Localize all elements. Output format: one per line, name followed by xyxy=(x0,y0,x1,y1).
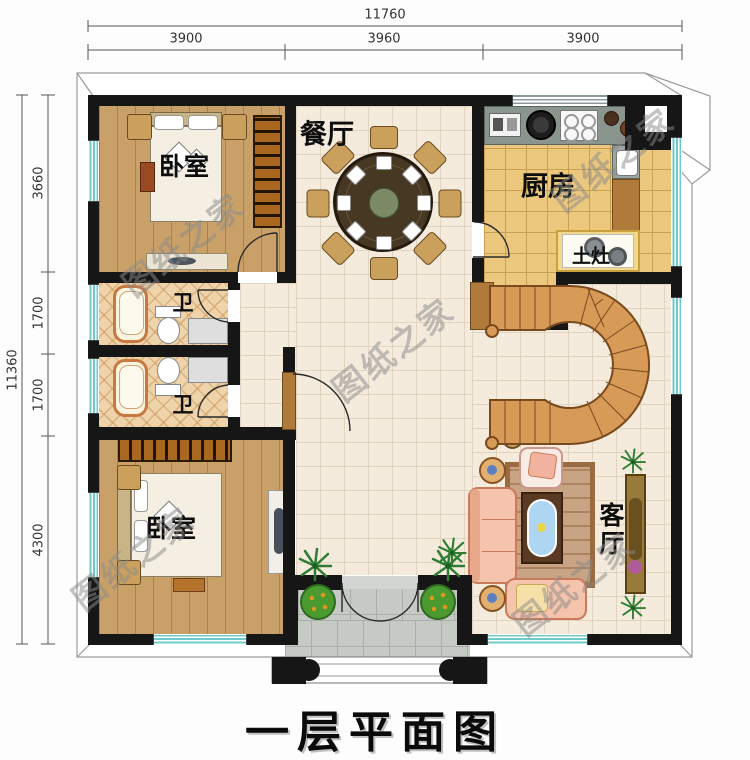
porch-apron xyxy=(285,620,470,657)
kitchen-wood-counter xyxy=(612,179,640,235)
place-setting xyxy=(376,156,392,170)
shower-bottom xyxy=(188,357,228,383)
sofa-main-back xyxy=(470,489,480,582)
wall-bath-separator xyxy=(88,345,240,357)
label-bath-bottom: 卫 xyxy=(173,389,194,419)
window-bath-bottom-left xyxy=(88,358,99,414)
armchair-pillow xyxy=(527,451,557,480)
wall-bath-right-a xyxy=(228,283,240,290)
entry-steps xyxy=(272,657,487,684)
window-stairs-right xyxy=(671,297,682,395)
dim-total-height: 11360 xyxy=(6,349,21,390)
place-setting xyxy=(337,195,351,211)
cooktop-burner xyxy=(581,127,596,142)
microwave-panel xyxy=(507,118,517,131)
floor-kitchen-lower xyxy=(484,272,556,318)
place-setting xyxy=(417,195,431,211)
wok-inner xyxy=(533,117,549,133)
door-bedroom-bottom xyxy=(282,372,296,430)
wall-kitchen-left-mid xyxy=(472,258,484,282)
toilet-top-bowl xyxy=(157,317,180,344)
window-bedroom-bottom-south xyxy=(153,634,247,645)
bed-top-pillow-left xyxy=(154,115,184,130)
dim-left-seg1: 3660 xyxy=(32,166,47,199)
coffee-table-item xyxy=(537,523,546,532)
ottoman-center xyxy=(487,593,497,603)
wall-bedroom-top-right xyxy=(285,95,296,283)
porch-floor xyxy=(298,588,457,621)
dim-left-seg4: 4300 xyxy=(32,523,47,556)
bed-top-pillow-right xyxy=(188,115,218,130)
window-bath-top-left xyxy=(88,284,99,341)
dining-chair xyxy=(307,190,330,218)
door-threshold xyxy=(342,576,418,589)
floor-plan: 11760 3900 3960 3900 11360 3660 1700 170… xyxy=(0,0,750,760)
window-bedroom-top-left xyxy=(88,140,99,202)
dim-left-seg2: 1700 xyxy=(32,296,47,329)
wall-entrance-stub-left xyxy=(283,575,298,645)
wall-entrance-stub-right xyxy=(457,575,472,645)
sofa-main-cushion-line xyxy=(482,551,515,552)
label-earth-stove: 土灶 xyxy=(572,242,610,269)
nightstand-top-right xyxy=(222,114,247,140)
wall-kitchen-south-east xyxy=(556,272,682,284)
door-stairhall xyxy=(470,282,494,330)
dim-top-seg1: 3900 xyxy=(169,32,202,47)
toilet-bottom-bowl xyxy=(157,357,180,384)
ottoman-center xyxy=(487,465,497,475)
dim-top-seg2: 3960 xyxy=(367,32,400,47)
bedside-bench-top xyxy=(140,162,155,192)
microwave-window xyxy=(493,118,503,131)
wall-bath-right-b xyxy=(228,322,240,385)
nightstand-top-left xyxy=(127,114,152,140)
wall-bedroom-top-bottom-b xyxy=(277,272,296,283)
stool xyxy=(502,428,523,449)
wall-bath-bottom xyxy=(88,427,296,440)
dining-chair xyxy=(370,126,398,149)
dining-chair xyxy=(439,190,462,218)
plan-title: 一层平面图 xyxy=(0,696,750,760)
dim-left-seg3: 1700 xyxy=(32,378,47,411)
window-kitchen-top xyxy=(512,95,608,106)
cooktop-burner xyxy=(564,127,579,142)
sofa-main-cushion-line xyxy=(482,519,515,520)
dim-total-width: 11760 xyxy=(364,8,405,23)
earth-stove-pot2 xyxy=(608,247,627,266)
wardrobe-bedroom-top xyxy=(253,115,282,228)
shower-top xyxy=(188,318,228,344)
lazy-susan xyxy=(369,188,399,218)
foot-bench xyxy=(173,578,205,592)
dim-top-seg3: 3900 xyxy=(566,32,599,47)
bathtub-bottom-inner xyxy=(119,365,144,409)
wall-kitchen-left-upper xyxy=(472,106,484,222)
label-bedroom-top: 卧室 xyxy=(159,147,209,183)
label-dining: 餐厅 xyxy=(300,113,354,152)
window-kitchen-right xyxy=(671,137,682,267)
dining-chair xyxy=(370,257,398,280)
place-setting xyxy=(376,236,392,250)
label-bath-top: 卫 xyxy=(173,287,194,317)
nightstand-bottom-1 xyxy=(117,465,141,490)
wall-kitchen-connector xyxy=(556,272,568,330)
